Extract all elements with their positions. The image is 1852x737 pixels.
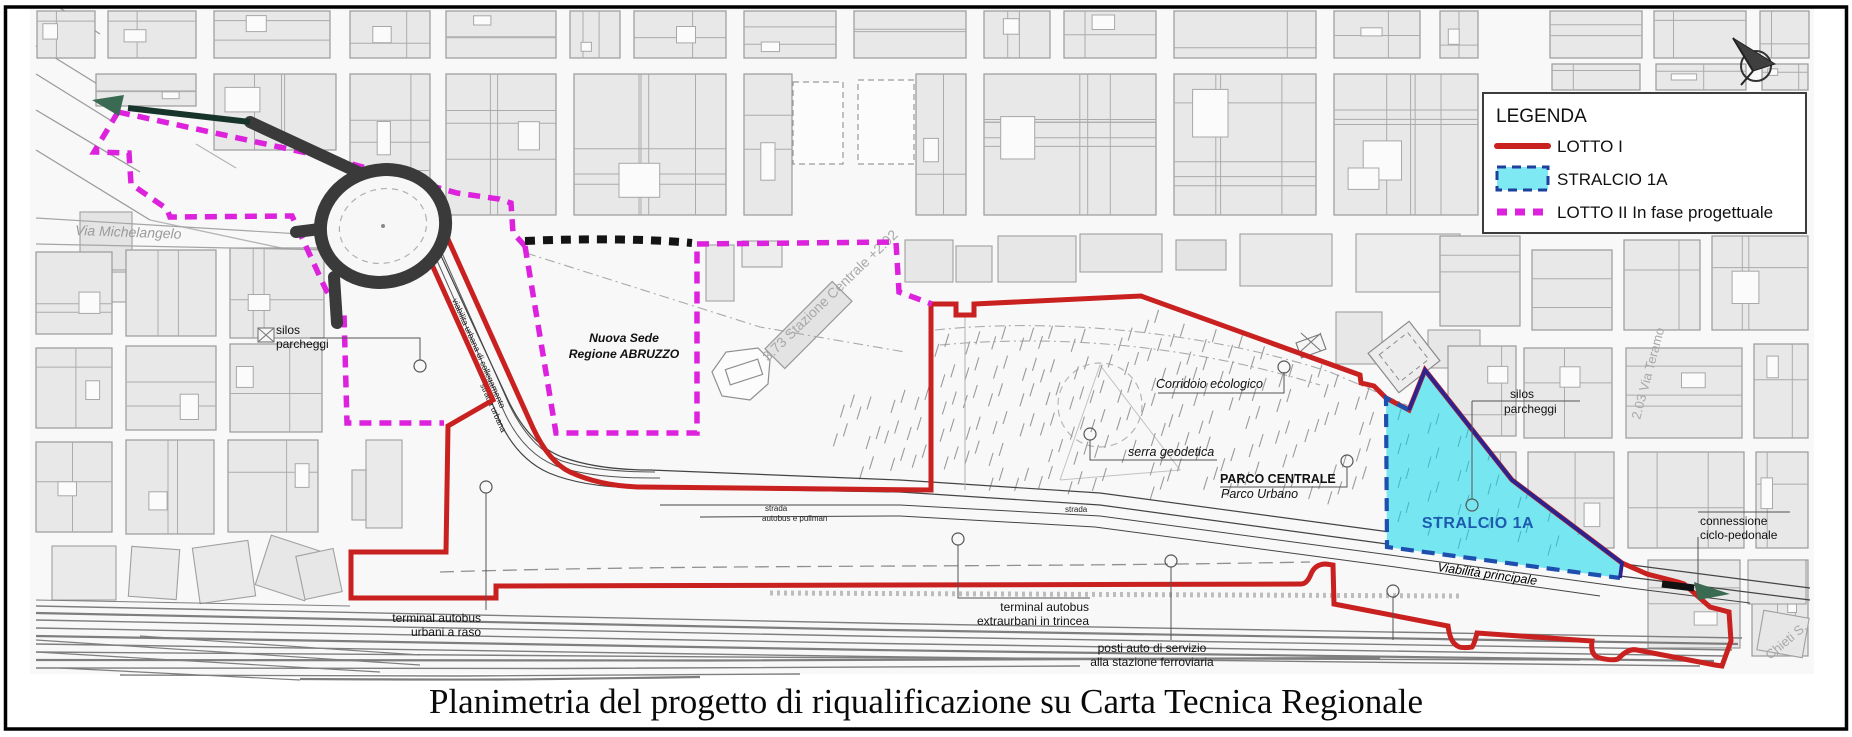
svg-text:parcheggi: parcheggi bbox=[1504, 402, 1557, 416]
svg-text:silos: silos bbox=[1510, 387, 1534, 401]
svg-text:LEGENDA: LEGENDA bbox=[1496, 106, 1587, 127]
svg-text:strada: strada bbox=[765, 504, 788, 513]
svg-text:terminal autobus: terminal autobus bbox=[392, 611, 481, 625]
svg-text:strada: strada bbox=[1065, 505, 1088, 514]
svg-text:urbani a raso: urbani a raso bbox=[411, 625, 481, 639]
svg-text:silos: silos bbox=[276, 323, 300, 337]
svg-text:posti auto di servizio: posti auto di servizio bbox=[1098, 641, 1207, 655]
svg-text:Regione ABRUZZO: Regione ABRUZZO bbox=[569, 347, 680, 361]
svg-text:alla stazione ferroviaria: alla stazione ferroviaria bbox=[1090, 655, 1214, 669]
svg-text:Planimetria del progetto di ri: Planimetria del progetto di riqualificaz… bbox=[429, 682, 1423, 721]
svg-text:Nuova Sede: Nuova Sede bbox=[589, 331, 659, 345]
svg-text:PARCO CENTRALE: PARCO CENTRALE bbox=[1220, 472, 1336, 486]
svg-text:ciclo-pedonale: ciclo-pedonale bbox=[1700, 528, 1778, 542]
svg-text:extraurbani in trincea: extraurbani in trincea bbox=[977, 614, 1089, 628]
svg-text:autobus e pullman: autobus e pullman bbox=[762, 514, 827, 523]
svg-text:parcheggi: parcheggi bbox=[276, 337, 329, 351]
svg-text:terminal autobus: terminal autobus bbox=[1000, 600, 1089, 614]
svg-text:LOTTO I: LOTTO I bbox=[1557, 137, 1623, 156]
svg-text:serra geodetica: serra geodetica bbox=[1128, 445, 1214, 459]
svg-text:LOTTO II In fase progettuale: LOTTO II In fase progettuale bbox=[1557, 203, 1773, 222]
svg-text:STRALCIO 1A: STRALCIO 1A bbox=[1557, 170, 1668, 189]
svg-text:STRALCIO 1A: STRALCIO 1A bbox=[1422, 515, 1534, 532]
svg-text:Parco Urbano: Parco Urbano bbox=[1221, 487, 1298, 501]
svg-text:connessione: connessione bbox=[1700, 514, 1768, 528]
svg-text:Corridoio ecologico: Corridoio ecologico bbox=[1156, 377, 1263, 391]
